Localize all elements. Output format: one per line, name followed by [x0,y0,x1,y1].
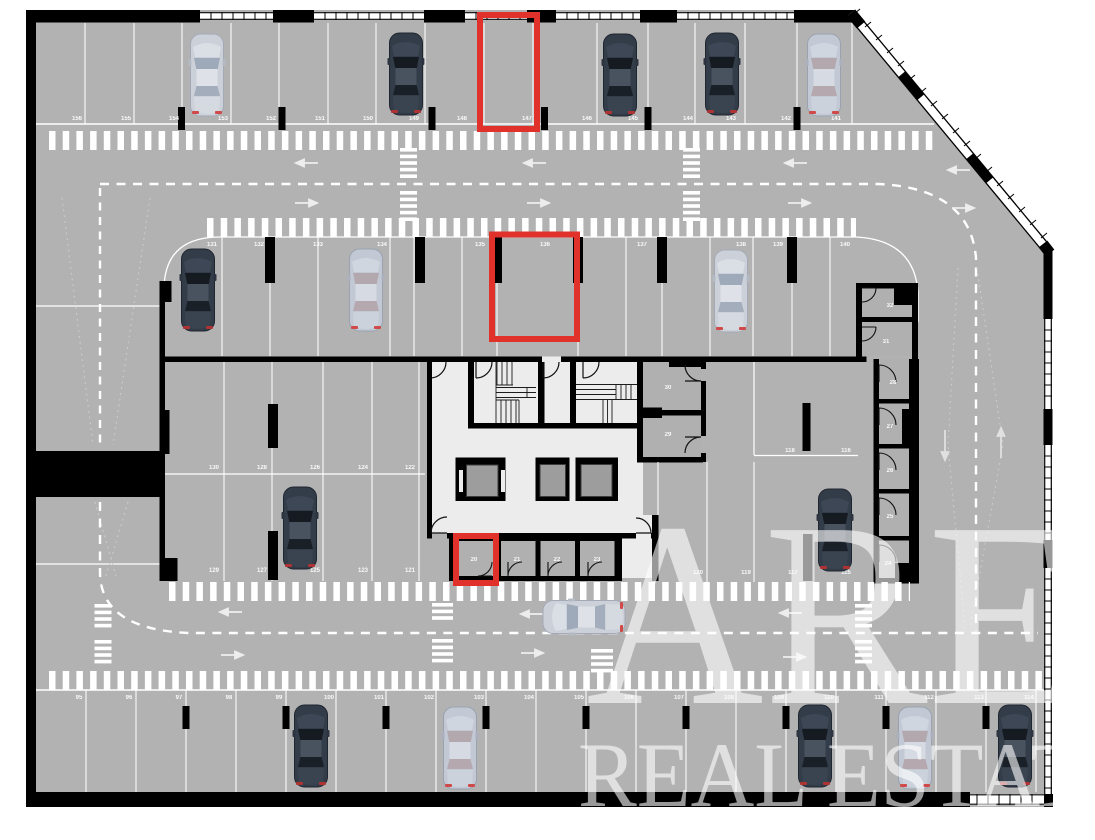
svg-text:156: 156 [72,116,83,122]
svg-text:147: 147 [522,116,533,122]
svg-text:127: 127 [257,568,268,574]
svg-text:22: 22 [554,557,561,563]
svg-text:131: 131 [207,242,218,248]
svg-text:150: 150 [363,116,374,122]
svg-text:138: 138 [736,242,747,248]
svg-text:99: 99 [276,695,283,701]
svg-text:132: 132 [254,242,265,248]
svg-text:154: 154 [169,116,180,122]
svg-text:129: 129 [209,568,220,574]
svg-text:151: 151 [315,116,326,122]
svg-text:134: 134 [377,242,388,248]
svg-text:32: 32 [887,303,894,309]
svg-text:145: 145 [628,116,639,122]
svg-text:152: 152 [266,116,277,122]
svg-text:153: 153 [218,116,229,122]
svg-text:REAL ESTATE: REAL ESTATE [578,724,1095,826]
svg-text:133: 133 [313,242,324,248]
svg-text:141: 141 [831,116,842,122]
svg-text:124: 124 [358,465,369,471]
svg-text:97: 97 [176,695,183,701]
svg-text:95: 95 [76,695,83,701]
svg-text:123: 123 [358,568,369,574]
svg-text:ARE: ARE [586,469,1078,761]
svg-text:28: 28 [890,380,897,386]
svg-text:104: 104 [524,695,535,701]
svg-text:121: 121 [405,568,416,574]
svg-text:122: 122 [405,465,416,471]
svg-text:20: 20 [471,557,478,563]
svg-text:101: 101 [374,695,385,701]
svg-text:102: 102 [424,695,435,701]
svg-text:31: 31 [883,339,890,345]
svg-text:29: 29 [665,432,672,438]
svg-text:149: 149 [409,116,420,122]
svg-text:105: 105 [574,695,585,701]
svg-text:148: 148 [457,116,468,122]
svg-text:144: 144 [683,116,694,122]
svg-text:155: 155 [121,116,132,122]
svg-text:130: 130 [209,465,220,471]
svg-text:30: 30 [665,385,672,391]
svg-text:118: 118 [785,448,795,454]
svg-text:128: 128 [257,465,268,471]
svg-text:125: 125 [310,568,321,574]
svg-text:98: 98 [226,695,233,701]
svg-text:139: 139 [773,242,784,248]
svg-text:135: 135 [475,242,486,248]
svg-text:136: 136 [540,242,551,248]
svg-text:140: 140 [840,242,851,248]
svg-text:146: 146 [582,116,593,122]
svg-text:137: 137 [637,242,648,248]
svg-text:27: 27 [887,424,894,430]
svg-text:21: 21 [514,557,521,563]
svg-text:100: 100 [324,695,335,701]
svg-text:143: 143 [726,116,737,122]
svg-text:116: 116 [841,448,851,454]
svg-text:96: 96 [126,695,133,701]
svg-text:126: 126 [310,465,321,471]
svg-text:142: 142 [781,116,792,122]
svg-text:103: 103 [474,695,485,701]
